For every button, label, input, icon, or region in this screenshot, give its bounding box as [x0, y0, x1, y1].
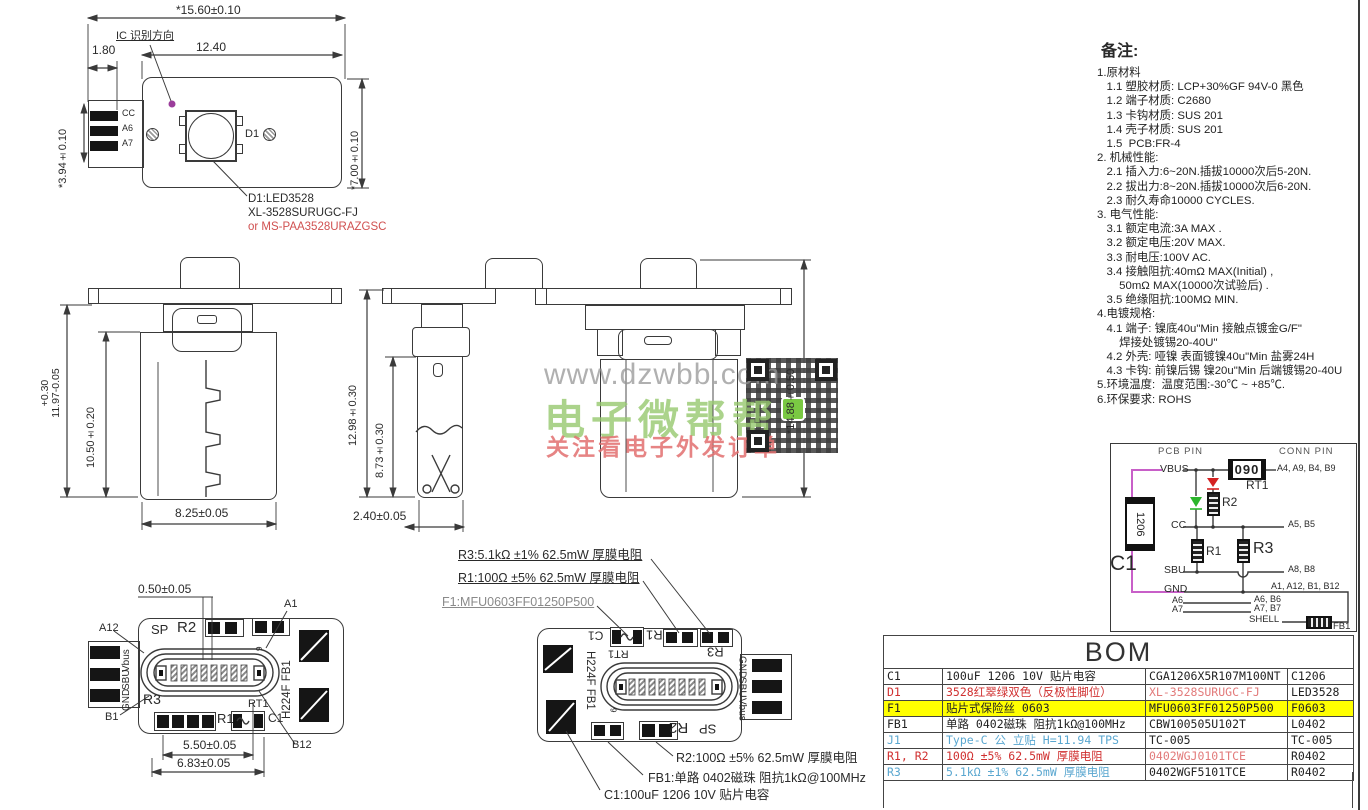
silk-sp: SP [699, 722, 716, 736]
r2-pad [208, 622, 220, 634]
callout-a1: A1 [284, 599, 297, 611]
side-body [417, 356, 463, 498]
led-tab [179, 116, 186, 126]
c1-ref: C1 [1110, 553, 1137, 575]
callout-b1: B1 [105, 712, 118, 724]
callout-r1: R1:100Ω ±5% 62.5mW 厚膜电阻 [458, 572, 640, 585]
bom-cell-pkg: R0402 [1288, 749, 1354, 765]
tab-label-gnd: GND [122, 687, 133, 711]
dim-side-width: 2.40±0.05 [353, 510, 406, 523]
r1-ref: R1 [1206, 545, 1221, 558]
resistor-r1 [1191, 539, 1204, 563]
bom-cell-ref: J1 [884, 733, 943, 749]
pad-label-a7: A7 [122, 139, 133, 148]
plug-body-outline [142, 77, 342, 188]
led-tab [236, 116, 243, 126]
back-flange [535, 288, 792, 305]
silk-c1: C1 [268, 712, 283, 725]
ic-direction-label: IC 识别方向 [116, 31, 174, 43]
bom-cell-part: CBW100505U102T [1146, 717, 1288, 733]
fb1-pad [610, 725, 621, 736]
bom-cell-desc: 贴片式保险丝 0603 [943, 701, 1146, 717]
side-flange [382, 288, 496, 304]
qr-finder-icon [747, 359, 769, 381]
note-line: 1.5 PCB:FR-4 [1097, 137, 1342, 151]
silk-r2: R2 [177, 620, 196, 636]
dim-front-height: +0.30 11.97-0.05 [40, 358, 62, 428]
bom-cell-desc: 单路 0402磁珠 阻抗1kΩ@100MHz [943, 717, 1146, 733]
callout-b12: B12 [292, 740, 312, 752]
note-line: 1.3 卡钩材质: SUS 201 [1097, 109, 1342, 123]
tab-pad-gnd [90, 689, 120, 702]
silk-h224f-fb1: H224F FB1 [281, 637, 293, 719]
net-vbus: VBUS [1160, 464, 1189, 475]
bom-cell-desc: 100Ω ±5% 62.5mW 厚膜电阻 [943, 749, 1146, 765]
ferrite-fb1 [1306, 616, 1332, 629]
r1-pad [157, 715, 169, 728]
side-top-nub [485, 258, 543, 289]
bom-cell-desc: Type-C 公 立贴 H=11.94 TPS [943, 733, 1146, 749]
pad-a7 [90, 141, 118, 151]
bom-cell-pkg: F0603 [1288, 701, 1354, 717]
bom-cell-ref: R1, R2 [884, 749, 943, 765]
dim-back-height: *14.88±0.50 [786, 336, 798, 434]
bom-title: BOM [884, 636, 1354, 669]
fb1-ref: FB1 [1333, 622, 1350, 632]
callout-r3: R3:5.1kΩ ±1% 62.5mW 厚膜电阻 [458, 549, 642, 562]
note-line: 3.1 额定电流:3A MAX . [1097, 222, 1342, 236]
silk-9: 9 [608, 708, 616, 720]
note-line: 50mΩ MAX(10000次试验后) . [1097, 279, 1342, 293]
note-line: 1.4 壳子材质: SUS 201 [1097, 123, 1342, 137]
resistor-r3 [1237, 539, 1250, 563]
dim-tab-height: *3.94±0.10 [58, 98, 70, 188]
dim-body-height: *7.00±0.10 [350, 94, 362, 190]
dim-pad-span: 6.83±0.05 [177, 757, 230, 770]
rt1-ref: RT1 [1246, 479, 1268, 492]
silk-r3: R3 [707, 645, 724, 659]
rt1-component: 090 [1228, 459, 1266, 480]
sheet-frame-right [1358, 0, 1360, 810]
back-flange-cap [780, 288, 792, 305]
side-collar [412, 327, 470, 357]
dim-side-inner-height: 8.73±0.30 [375, 394, 387, 478]
net-sbu: SBU [1164, 565, 1186, 576]
bom-cell-ref: FB1 [884, 717, 943, 733]
net-gnd: GND [1164, 584, 1187, 595]
r1-pad [187, 715, 199, 728]
tab-label-vbus: Vbus [736, 698, 747, 726]
led-callout-2: XL-3528SURUGC-FJ [248, 207, 358, 219]
back-flange-cap [535, 288, 547, 305]
net-a7: A7 [1172, 605, 1183, 614]
back-latch-slot [644, 336, 672, 345]
front-top-nub [180, 257, 240, 289]
net-shell: SHELL [1249, 615, 1279, 625]
bom-cell-pkg: R0402 [1288, 765, 1354, 781]
bom-row: R35.1kΩ ±1% 62.5mW 厚膜电阻0402WGF5101TCER04… [884, 765, 1354, 781]
qr-finder-icon [747, 430, 769, 452]
bom-row: F1贴片式保险丝 0603MFU0603FF01250P500F0603 [884, 701, 1354, 717]
note-line: 3.5 绝缘阻抗:100MΩ MIN. [1097, 293, 1342, 307]
note-line: 4.1 端子: 镍底40u"Min 接触点镀金G/F" [1097, 322, 1342, 336]
watermark-slogan: 关注看电子外发订单 [546, 428, 780, 462]
note-line: 5.环境温度: 温度范围:-30℃ ~ +85℃. [1097, 378, 1342, 392]
bom-cell-ref: R3 [884, 765, 943, 781]
bom-cell-pkg: LED3528 [1288, 685, 1354, 701]
notes-title: 备注: [1101, 44, 1138, 61]
bom-cell-part: TC-005 [1146, 733, 1288, 749]
front-flange-cap [88, 288, 99, 304]
note-line: 3.2 额定电压:20V MAX. [1097, 236, 1342, 250]
front-flange [88, 288, 342, 304]
silk-rt1: RT1 [248, 699, 269, 711]
conn-pin-header: CONN PIN [1279, 447, 1333, 457]
note-line: 1.1 塑胶材质: LCP+30%GF 94V-0 黑色 [1097, 80, 1342, 94]
bom-cell-ref: C1 [884, 669, 943, 685]
bom-row: R1, R2100Ω ±5% 62.5mW 厚膜电阻0402WGJ0101TCE… [884, 749, 1354, 765]
r2-ref: R2 [1222, 496, 1237, 509]
r3-pad [272, 621, 284, 633]
silk-9: 9 [256, 639, 264, 651]
shield-pad [299, 630, 329, 662]
note-line: 3.4 接触阻抗:40mΩ MAX(Initial) , [1097, 265, 1342, 279]
conn-vbus-pins: A4, A9, B4, B9 [1277, 464, 1336, 473]
note-line: 2. 机械性能: [1097, 151, 1342, 165]
oval-pad-right [263, 128, 276, 141]
side-stem [421, 304, 463, 328]
led-tab [179, 144, 186, 154]
front-latch-slot [197, 315, 217, 324]
rt1-marking: 090 [1235, 462, 1260, 477]
bom-row: J1Type-C 公 立贴 H=11.94 TPSTC-005TC-005 [884, 733, 1354, 749]
bom-cell-pkg: TC-005 [1288, 733, 1354, 749]
bom-cell-desc: 5.1kΩ ±1% 62.5mW 厚膜电阻 [943, 765, 1146, 781]
conn-sbu-pins: A8, B8 [1288, 565, 1315, 574]
pad-cc [90, 111, 118, 121]
r1-pad [172, 715, 184, 728]
tab-pad-vbus [752, 701, 782, 714]
conn-a7-pins: A7, B7 [1254, 604, 1281, 613]
bom-row: FB1单路 0402磁珠 阻抗1kΩ@100MHzCBW100505U102TL… [884, 717, 1354, 733]
fuse-pad [233, 714, 242, 728]
r3-pad [255, 621, 267, 633]
silk-sp: SP [151, 623, 168, 637]
shield-pad [299, 688, 329, 722]
callout-c1: C1:100uF 1206 10V 贴片电容 [604, 789, 769, 802]
fuse-pad [612, 630, 621, 644]
note-line: 4.3 卡钩: 前镍后锡 镍20u"Min 后端镀锡20-40U [1097, 364, 1342, 378]
fuse-pad [254, 714, 263, 728]
r1-pad [666, 632, 677, 643]
r2-pad [225, 622, 237, 634]
silk-r1: R1 [646, 628, 663, 642]
qr-finder-icon [815, 359, 837, 381]
dim-pin-span: 5.50±0.05 [183, 739, 236, 752]
r3-ref: R3 [1253, 541, 1273, 558]
side-flange-cap [382, 288, 392, 304]
pad-label-a6: A6 [122, 124, 133, 133]
bom-cell-part: MFU0603FF01250P500 [1146, 701, 1288, 717]
silk-h224f-fb1: H224F FB1 [584, 651, 596, 733]
note-line: 2.3 耐久寿命10000 CYCLES. [1097, 194, 1342, 208]
engineering-drawing-sheet: *15.60±0.10 IC 识别方向 12.40 1.80 *3.94±0.1… [0, 0, 1368, 810]
dim-tab-width: 1.80 [92, 44, 115, 57]
note-line: 3. 电气性能: [1097, 208, 1342, 222]
bom-cell-part: XL-3528SURUGC-FJ [1146, 685, 1288, 701]
pcb-pin-header: PCB PIN [1158, 447, 1203, 457]
conn-gnd-pins: A1, A12, B1, B12 [1271, 582, 1340, 591]
bom-cell-part: CGA1206X5R107M100NT [1146, 669, 1288, 685]
note-line: 2.1 插入力:6~20N.插拔10000次后5-20N. [1097, 165, 1342, 179]
callout-fb1: FB1:单路 0402磁珠 阻抗1kΩ@100MHz [648, 772, 866, 785]
notes-lines: 1.原材料 1.1 塑胶材质: LCP+30%GF 94V-0 黑色 1.2 端… [1097, 66, 1342, 407]
shield-pad [546, 700, 576, 734]
led-ref: D1 [245, 129, 259, 141]
back-upper-housing [585, 305, 745, 330]
back-ear-right [715, 329, 741, 356]
bom-row: C1100uF 1206 10V 贴片电容CGA1206X5R107M100NT… [884, 669, 1354, 685]
led-callout-1: D1:LED3528 [248, 193, 314, 205]
dim-front-height-val: 11.97-0.05 [51, 358, 62, 428]
callout-f1: F1:MFU0603FF01250P500 [442, 596, 594, 609]
note-line: 1.2 端子材质: C2680 [1097, 94, 1342, 108]
bom-cell-desc: 3528红翠绿双色（反极性脚位） [943, 685, 1146, 701]
silk-r3: R3 [143, 692, 161, 707]
bom-cell-ref: F1 [884, 701, 943, 717]
bom-cell-part: 0402WGF5101TCE [1146, 765, 1288, 781]
bom-cell-pkg: C1206 [1288, 669, 1354, 685]
dim-side-height: 12.98±0.30 [348, 352, 360, 446]
callout-r2: R2:100Ω ±5% 62.5mW 厚膜电阻 [676, 752, 858, 765]
capacitor-c1: 1206 [1125, 497, 1155, 551]
bom-cell-pkg: L0402 [1288, 717, 1354, 733]
fuse-pad [633, 630, 642, 644]
bom-cell-desc: 100uF 1206 10V 贴片电容 [943, 669, 1146, 685]
led-callout-3: or MS-PAA3528URAZGSC [248, 221, 386, 233]
led-tab [236, 144, 243, 154]
resistor-r2 [1207, 492, 1220, 516]
bom-cell-part: 0402WGJ0101TCE [1146, 749, 1288, 765]
bom-cell-ref: D1 [884, 685, 943, 701]
note-line: 4.电镀规格: [1097, 307, 1342, 321]
dim-front-width: 8.25±0.05 [175, 507, 228, 520]
tab-pad-vbus [90, 646, 120, 659]
note-line: 焊接处镀锡20-40U" [1097, 336, 1342, 350]
dim-front-inner-height: 10.50±0.20 [86, 374, 98, 468]
silk-r1: R1 [217, 712, 234, 726]
r3-pad [718, 632, 729, 643]
tab-pad-sbu [752, 680, 782, 693]
c1-marking: 1206 [1134, 512, 1146, 536]
front-body [140, 332, 277, 500]
r1-pad [202, 715, 214, 728]
pad-label-cc: CC [122, 109, 135, 118]
bom-table: BOM C1100uF 1206 10V 贴片电容CGA1206X5R107M1… [883, 635, 1354, 781]
side-hole [433, 363, 443, 377]
silk-c1: C1 [588, 629, 603, 642]
dim-led-offset: 12.40 [196, 41, 226, 54]
r2-pad [642, 724, 655, 737]
note-line: 6.环保要求: ROHS [1097, 393, 1342, 407]
bom-row: D13528红翠绿双色（反极性脚位）XL-3528SURUGC-FJLED352… [884, 685, 1354, 701]
tab-pad-gnd [752, 659, 782, 672]
conn-cc-pins: A5, B5 [1288, 520, 1315, 529]
dim-overall-width: *15.60±0.10 [176, 4, 241, 17]
note-line: 1.原材料 [1097, 66, 1342, 80]
front-flange-cap [331, 288, 342, 304]
note-line: 2.2 拔出力:8~20N.插拔10000次后6-20N. [1097, 180, 1342, 194]
dim-pitch: 0.50±0.05 [138, 583, 191, 596]
led-dome [188, 113, 234, 159]
callout-a12: A12 [99, 623, 119, 635]
back-top-nub [640, 258, 697, 289]
pad-a6 [90, 126, 118, 136]
silk-rt1: RT1 [608, 647, 629, 659]
shield-pad [543, 645, 573, 673]
oval-pad-left [146, 128, 159, 141]
r3-pad [702, 632, 713, 643]
silk-r2: R2 [669, 719, 688, 735]
note-line: 3.3 耐电压:100V AC. [1097, 251, 1342, 265]
tab-pad-sbu [90, 668, 120, 681]
note-line: 4.2 外壳: 哑镍 表面镀镍40u"Min 盐雾24H [1097, 350, 1342, 364]
r1-pad [682, 632, 693, 643]
net-cc: CC [1171, 520, 1186, 531]
